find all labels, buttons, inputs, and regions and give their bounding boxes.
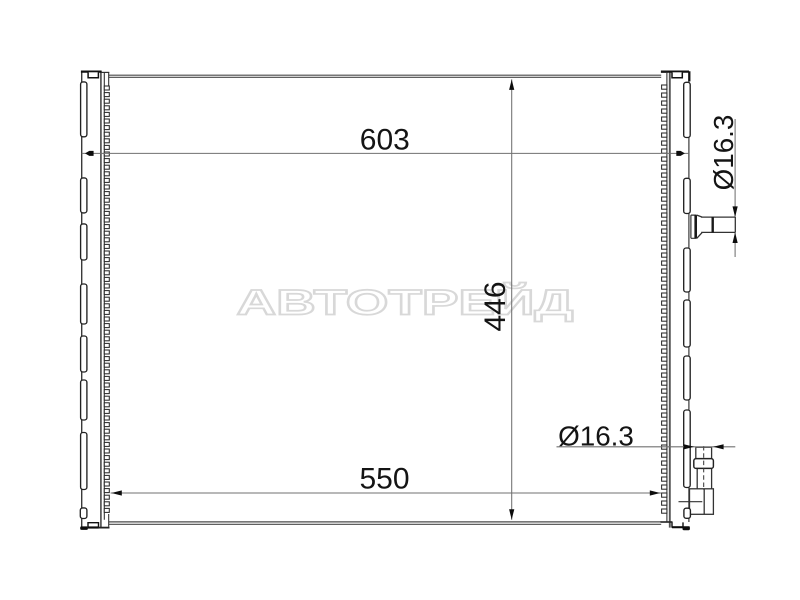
svg-text:446: 446 [479,281,512,331]
svg-text:Ø16.3: Ø16.3 [708,115,739,191]
svg-text:603: 603 [360,123,410,156]
svg-text:550: 550 [359,462,409,495]
svg-text:АВТОТРЕЙД: АВТОТРЕЙД [237,283,574,323]
svg-text:Ø16.3: Ø16.3 [558,420,634,451]
